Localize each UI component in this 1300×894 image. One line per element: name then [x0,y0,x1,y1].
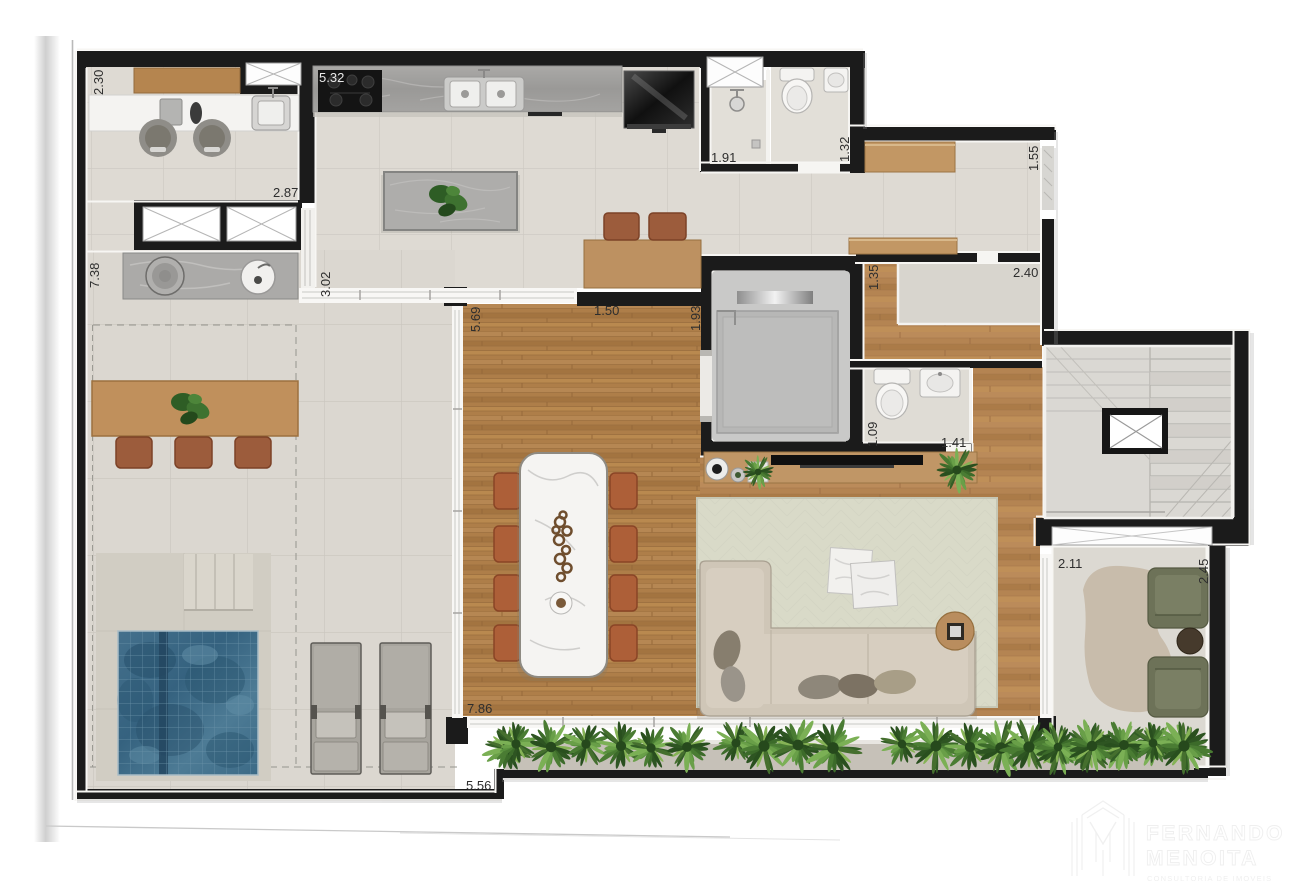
svg-text:1.93: 1.93 [688,306,703,331]
svg-text:1.55: 1.55 [1026,146,1041,171]
svg-text:2.30: 2.30 [91,70,106,95]
svg-text:7.86: 7.86 [467,701,492,716]
svg-text:1.32: 1.32 [837,137,852,162]
svg-text:5.69: 5.69 [468,307,483,332]
svg-text:CONSULTORIA DE IMOVEIS: CONSULTORIA DE IMOVEIS [1147,874,1272,883]
svg-text:2.11: 2.11 [1058,556,1082,571]
svg-text:2.40: 2.40 [1013,265,1038,280]
svg-text:5.56: 5.56 [466,778,491,793]
svg-text:1.09: 1.09 [865,422,880,447]
svg-text:2.45: 2.45 [1196,559,1211,584]
svg-text:1.50: 1.50 [594,303,619,318]
svg-text:1.41: 1.41 [941,435,966,450]
svg-text:FERNANDO: FERNANDO [1146,822,1285,845]
svg-text:3.02: 3.02 [318,272,333,297]
svg-text:1.35: 1.35 [866,265,881,290]
svg-text:5.32: 5.32 [319,70,344,85]
svg-text:2.87: 2.87 [273,185,298,200]
svg-text:MENOITA: MENOITA [1146,847,1259,870]
svg-text:1.91: 1.91 [711,150,736,165]
svg-text:7.38: 7.38 [87,263,102,288]
